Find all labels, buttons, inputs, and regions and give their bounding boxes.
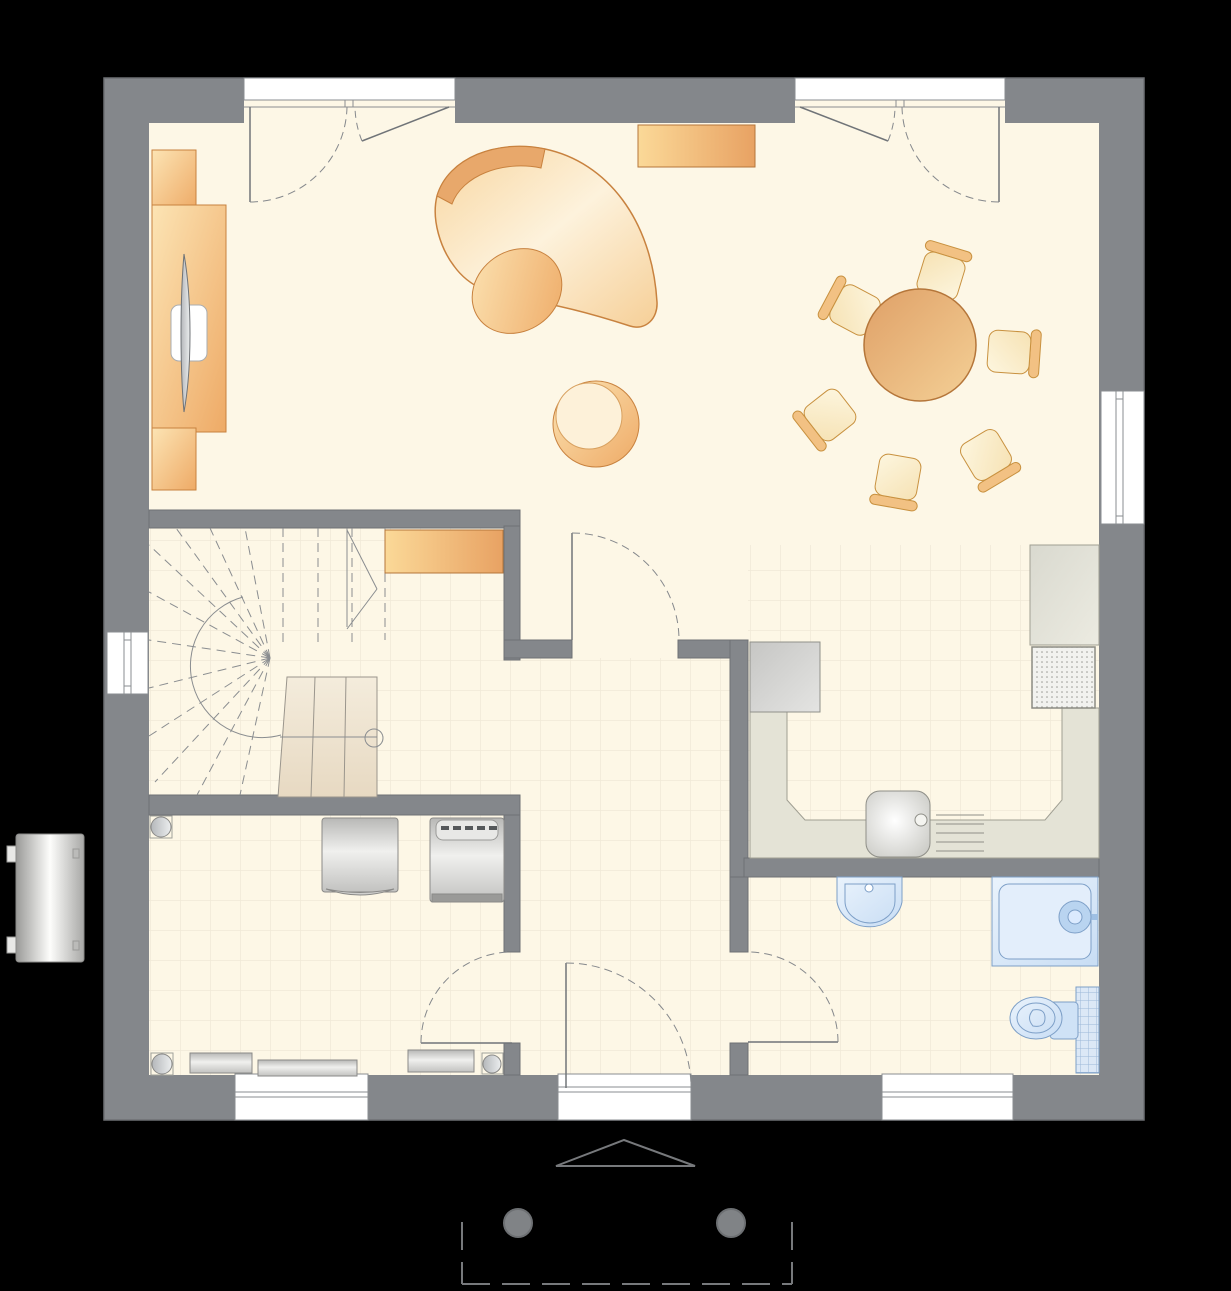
bath-washbasin-faucet: [865, 884, 873, 892]
living-shelf-bottom: [152, 428, 196, 490]
floor-plan-drawing: [0, 0, 1231, 1291]
rain-tank-bracket-inner-br: [73, 941, 79, 950]
rain-tank-bracket-inner-tr: [73, 849, 79, 858]
wall-stair-top: [149, 510, 520, 528]
living-shelf-top: [152, 150, 196, 210]
front-door-panel: [558, 1074, 691, 1120]
window-top-right: [795, 78, 1005, 100]
floor-plan-canvas: [0, 0, 1231, 1291]
wall-utility-top: [149, 795, 520, 815]
stair-sideboard: [385, 530, 503, 573]
wall-utility-right-lower: [504, 1043, 520, 1075]
wall-bath-left-upper: [730, 877, 748, 952]
hallway-floor-grid: [504, 658, 748, 1075]
utility-radiator-1: [190, 1053, 252, 1073]
wall-bath-left-lower: [730, 1043, 748, 1075]
window-top-right-sill: [795, 100, 1005, 123]
kitchen-tall-cabinet: [1030, 545, 1099, 645]
utility-radiator-2: [258, 1060, 357, 1076]
dining-sideboard: [638, 125, 755, 167]
dining-table: [864, 289, 976, 401]
utility-dryer-base: [432, 894, 502, 902]
utility-pipe-bottom: [152, 1054, 172, 1074]
window-left-wall: [107, 632, 148, 694]
dining-chair-3-seat: [987, 330, 1032, 375]
window-top-left: [244, 78, 455, 100]
hall-radiator: [408, 1050, 474, 1072]
entry-canopy: [556, 1140, 695, 1166]
wall-utility-right-upper: [504, 815, 520, 952]
bath-tiled-wall: [1076, 987, 1099, 1073]
kitchen-stove: [1032, 647, 1095, 708]
kitchen-sink-drain: [915, 814, 927, 826]
bath-shower-head-inner: [1068, 910, 1082, 924]
window-top-left-sill: [244, 100, 455, 123]
wall-hall-top-right: [678, 640, 730, 658]
porch-post-right: [717, 1209, 745, 1237]
ball-chair-seat: [556, 383, 622, 449]
wall-hall-top-left: [504, 640, 572, 658]
kitchen-fridge: [750, 642, 820, 712]
porch-post-left: [504, 1209, 532, 1237]
wall-kitchen-bath: [744, 858, 1099, 877]
utility-pipe-top: [151, 817, 171, 837]
hall-pipe: [483, 1055, 501, 1073]
utility-washer: [322, 818, 398, 892]
wall-kitchen-left: [730, 640, 748, 877]
dining-chair-5-seat: [874, 453, 923, 502]
